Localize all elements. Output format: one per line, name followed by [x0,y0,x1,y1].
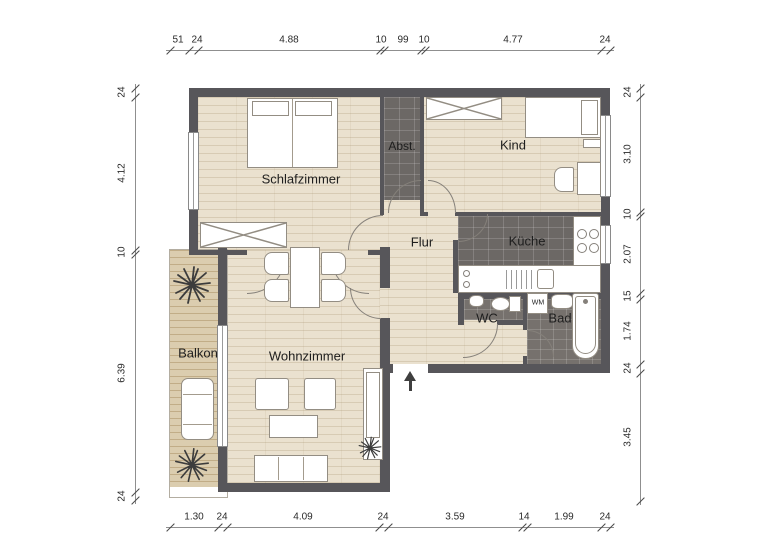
toilet-bowl [491,297,510,311]
lounger-seam [183,394,212,395]
room-label-wc: WC [476,311,498,326]
window-kueche [600,225,611,264]
wall-wohn-right-low [380,318,390,364]
dim-label: 15 [623,290,634,301]
dim-label: 10 [418,35,429,46]
sink-drainer [506,270,534,289]
wall-wc-bottom-b [497,320,523,325]
wardrobe-schlafzimmer [200,222,287,248]
dim-label: 10 [375,35,386,46]
floor-plan: WM Schlafzimmer Abst. Kind Flur Küche WC… [0,0,768,560]
stove-burner [577,243,587,253]
sofa [254,455,328,482]
window-schlafzimmer [188,132,199,210]
bad-sink [551,294,573,309]
counter-knob [463,270,470,277]
dim-label: 6.39 [117,363,128,382]
dim-label: 4.09 [293,512,312,523]
dim-label: 4.77 [503,35,522,46]
sofa-seam [303,457,304,480]
wall-wohn-bottom [218,483,390,492]
room-label-balkon: Balkon [178,346,218,361]
lounger-seam [183,424,212,425]
armchair [255,378,289,410]
wall-balkon-b [218,445,227,492]
dim-label: 10 [623,208,634,219]
dim-line-bottom [166,527,614,528]
dim-label: 24 [117,86,128,97]
room-label-kueche: Küche [509,234,546,249]
dim-label: 24 [117,490,128,501]
balcony-door-window [217,325,228,447]
dim-label: 24 [377,512,388,523]
dim-label: 14 [518,512,529,523]
wall-wc-bad-divider-b [523,356,527,364]
room-label-kind: Kind [500,138,526,153]
wardrobe-x-icon [427,98,501,119]
room-label-schlafzimmer: Schlafzimmer [262,172,341,187]
wall-top [189,88,610,97]
nightstand-kind [583,139,601,148]
pillow [252,101,289,116]
sun-lounger [181,378,214,440]
bathtub-inner [575,296,596,354]
stove-burner [589,243,599,253]
dim-line-top [166,50,614,51]
dim-label: 24 [216,512,227,523]
entrance-arrow-stem [409,380,412,391]
toilet-tank [509,296,521,312]
plant-icon [172,265,212,305]
dim-line-left [135,84,136,504]
wardrobe-x-icon [201,223,286,247]
dim-label: 3.59 [445,512,464,523]
stove-burner [577,229,587,239]
dim-label: 1.99 [554,512,573,523]
dining-table [290,247,320,308]
wall-flur-stub [380,247,390,288]
dim-label: 24 [599,512,610,523]
bathtub-drain [583,299,588,304]
window-kind [600,115,611,197]
kitchen-counter-right [573,216,601,266]
room-label-flur: Flur [411,235,433,250]
wardrobe-kind [426,97,502,120]
room-label-bad: Bad [548,311,571,326]
dim-label: 24 [599,35,610,46]
dim-label: 4.12 [117,163,128,182]
plant-icon [358,436,382,460]
kitchen-sink [537,269,554,289]
dim-label: 3.10 [623,144,634,163]
wall-balkon-a [218,247,227,325]
washing-machine-label: WM [532,300,544,307]
coffee-table [269,415,318,438]
dim-label: 24 [623,86,634,97]
armchair [304,378,336,410]
stove-burner [589,229,599,239]
room-label-abstellraum: Abst. [388,139,415,153]
wall-kind-bottom-a [420,212,428,216]
desk-kind [577,162,601,195]
dining-chair [264,252,289,275]
dim-label: 4.88 [279,35,298,46]
dim-label: 1.74 [623,321,634,340]
plant-icon [174,447,210,483]
desk-chair [554,167,574,192]
wall-schlaf-right [380,97,384,215]
dim-label: 1.30 [184,512,203,523]
dim-label: 51 [172,35,183,46]
room-label-wohnzimmer: Wohnzimmer [269,349,345,364]
sideboard-inner [366,372,380,438]
dim-label: 24 [191,35,202,46]
dim-label: 10 [117,246,128,257]
wc-sink [469,295,484,307]
counter-knob [463,281,470,288]
pillow [295,101,332,116]
wall-bottom-right-b [428,364,610,373]
dim-label: 99 [397,35,408,46]
dim-label: 24 [623,362,634,373]
dining-chair [321,279,346,302]
pillow [581,100,598,135]
dining-chair [321,252,346,275]
bed-divider [292,99,293,167]
sofa-seam [278,457,279,480]
dim-label: 3.45 [623,427,634,446]
dim-label: 2.07 [623,244,634,263]
dining-chair [264,279,289,302]
